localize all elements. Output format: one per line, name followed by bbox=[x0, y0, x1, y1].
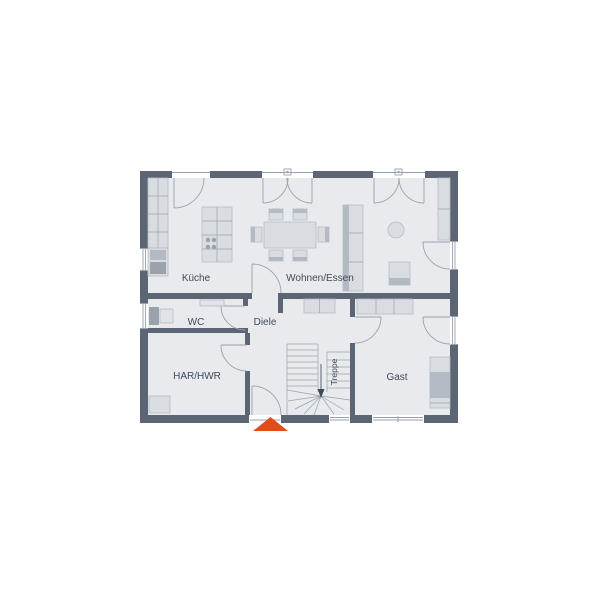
wc-window bbox=[140, 303, 148, 329]
armchair bbox=[389, 262, 410, 285]
room-label-diele: Diele bbox=[254, 317, 277, 328]
dining-table bbox=[264, 222, 316, 248]
kitchen-appliance bbox=[148, 248, 168, 276]
stair-window bbox=[329, 415, 350, 423]
kitchen-window bbox=[140, 248, 148, 271]
room-label-wc: WC bbox=[188, 317, 205, 328]
room-label-treppe: Treppe bbox=[329, 358, 339, 385]
kitchen-island bbox=[202, 207, 232, 262]
room-label-kueche: Küche bbox=[182, 273, 211, 284]
dining-chair bbox=[293, 250, 307, 261]
wc-toilet bbox=[160, 309, 173, 323]
dining-chair bbox=[318, 227, 329, 242]
coffee-table bbox=[388, 222, 404, 238]
wc-sink bbox=[149, 307, 159, 325]
dining-chair bbox=[293, 209, 307, 220]
floor-plan-svg: Treppe Küche Wohnen/Essen WC Diele HAR/H… bbox=[0, 0, 600, 600]
room-label-wohnen: Wohnen/Essen bbox=[286, 273, 354, 284]
wc-radiator bbox=[200, 300, 224, 306]
dining-chair bbox=[269, 250, 283, 261]
hall-sideboard bbox=[304, 299, 335, 313]
floor-plan-page: Treppe Küche Wohnen/Essen WC Diele HAR/H… bbox=[0, 0, 600, 600]
wardrobe bbox=[357, 299, 413, 314]
sideboard bbox=[438, 178, 450, 240]
dining-chair bbox=[269, 209, 283, 220]
har-cabinet bbox=[149, 396, 170, 413]
room-label-har: HAR/HWR bbox=[173, 371, 221, 382]
guest-window bbox=[372, 415, 424, 423]
room-label-gast: Gast bbox=[386, 372, 407, 383]
bed bbox=[430, 357, 450, 408]
kitchen-counter bbox=[148, 178, 168, 248]
dining-chair bbox=[251, 227, 262, 242]
